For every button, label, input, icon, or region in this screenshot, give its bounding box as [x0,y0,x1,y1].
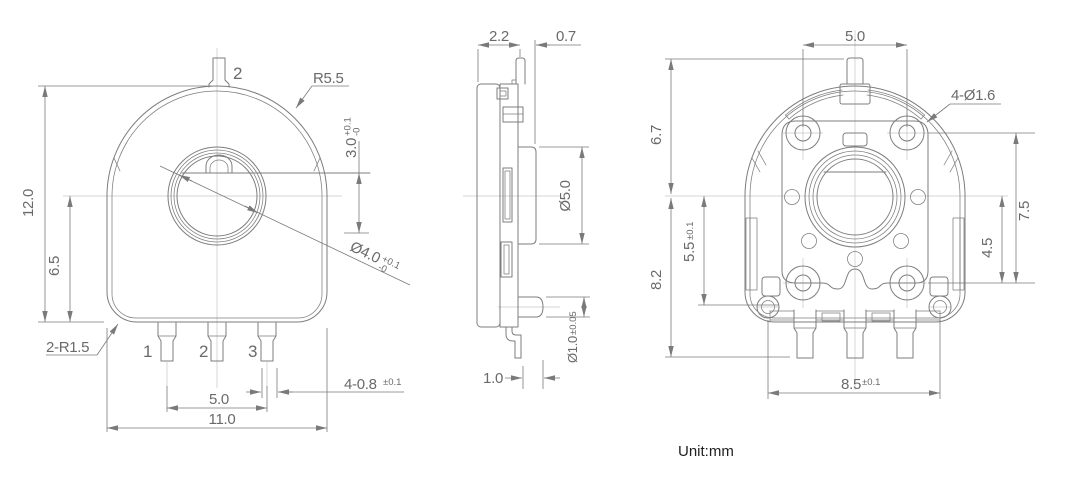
front-top-tab [209,58,229,87]
dim-overall-width: 11.0 [209,411,236,428]
side-bracket-plate [477,84,500,327]
svg-text:6.5: 6.5 [46,256,63,276]
svg-text:±0.1: ±0.1 [685,222,696,240]
dim-pin-offset: 1.0 [483,370,503,387]
label-corner-radius: 2-R1.5 [46,339,89,356]
front-terminal2-label: 2 [233,64,242,83]
dim-rotor-dia: Ø5.0 [557,180,574,211]
drawing-sheet: 12.0 6.5 3.0 +0.1 -0 Ø4.0 +0.1 -0 R5.5 [0,0,1066,484]
svg-text:8.2: 8.2 [648,270,665,290]
svg-text:3.0: 3.0 [343,138,360,158]
dim-bore-dia: Ø4.0 +0.1 -0 [346,238,403,280]
svg-text:Ø1.0: Ø1.0 [565,336,580,363]
dim-eyelet-span: 8.5 ±0.1 [841,376,880,393]
svg-text:7.5: 7.5 [1016,201,1033,221]
back-view: 5.0 4-Ø1.6 6.7 8.2 5.5 ±0.1 7.5 [648,28,1035,399]
side-bent-pin [506,327,515,358]
svg-text:8.5: 8.5 [841,376,861,393]
front-pin1-label: 1 [143,342,152,361]
dim-overall-height: 12.0 [20,189,37,217]
dim-pin-width: 4-0.8 ±0.1 [344,376,401,393]
dim-eyelet-offset: 5.5 ±0.1 [681,222,698,262]
label-mount-holes: 4-Ø1.6 [951,87,995,104]
svg-text:±0.1: ±0.1 [383,377,401,388]
svg-text:6.7: 6.7 [648,125,665,145]
svg-text:12.0: 12.0 [20,189,37,217]
technical-drawing: 12.0 6.5 3.0 +0.1 -0 Ø4.0 +0.1 -0 R5.5 [0,0,1066,484]
dim-pin-dia: Ø1.0 ±0.05 [565,311,580,363]
dim-center-height: 6.5 [46,256,63,276]
dim-upper-height: 6.7 [648,125,665,145]
dim-boss-depth: 0.7 [556,28,576,45]
dim-dflat-height: 3.0 +0.1 -0 [343,117,363,158]
front-pin2-label: 2 [199,342,208,361]
svg-text:4.5: 4.5 [979,238,996,258]
dim-center-to-hole: 4.5 [979,238,996,258]
dim-hole-row-span: 7.5 [1016,201,1033,221]
front-view: 12.0 6.5 3.0 +0.1 -0 Ø4.0 +0.1 -0 R5.5 [20,48,410,432]
dim-pin-span: 5.0 [209,391,229,408]
svg-text:-0: -0 [376,262,388,276]
dim-hole-span: 5.0 [845,28,865,45]
svg-text:5.5: 5.5 [681,242,698,262]
dim-lower-height: 8.2 [648,270,665,290]
front-pin3-label: 3 [248,342,257,361]
side-view: 2.2 0.7 Ø5.0 Ø1.0 ±0.05 1.0 [463,28,590,389]
side-top-tab [516,58,525,84]
svg-text:Ø4.0: Ø4.0 [347,238,383,267]
svg-text:±0.05: ±0.05 [568,311,579,335]
svg-text:Ø5.0: Ø5.0 [557,180,574,211]
side-rotor [518,147,536,244]
svg-text:±0.1: ±0.1 [862,377,880,388]
label-body-radius: R5.5 [313,70,344,87]
svg-text:4-0.8: 4-0.8 [344,376,377,393]
unit-note: Unit:mm [678,443,734,460]
dim-body-depth: 2.2 [489,28,509,45]
svg-text:-0: -0 [352,128,363,136]
